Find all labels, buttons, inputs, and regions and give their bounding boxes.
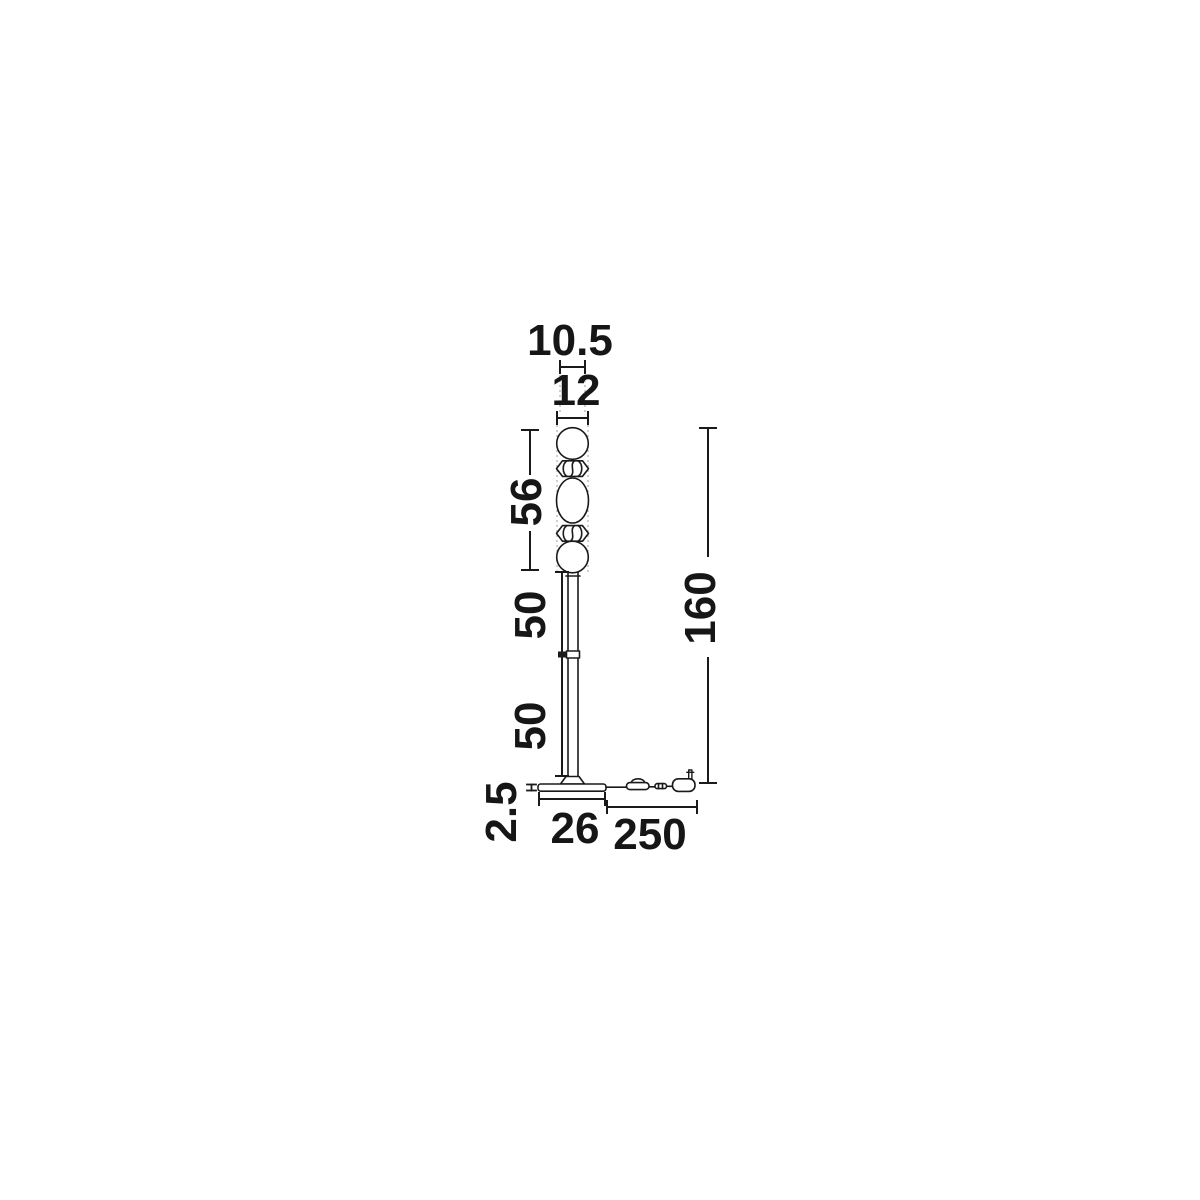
cord-connector — [655, 784, 667, 789]
power-plug — [673, 770, 696, 791]
plug-body — [673, 779, 696, 792]
dim-line-pole-segments — [556, 572, 568, 776]
pole-mount — [561, 777, 585, 785]
pole-joint — [567, 651, 580, 658]
glass-ellipse — [557, 478, 589, 523]
plug-pin — [689, 770, 692, 779]
lower-bicone-bead — [557, 526, 589, 542]
lamp-base — [538, 784, 606, 791]
dim-label-base-width: 26 — [551, 811, 600, 847]
dim-line-base-thickness — [527, 785, 536, 791]
inline-switch — [627, 779, 650, 790]
dim-label-lower-pole-length: 50 — [513, 702, 549, 751]
pole-segment-divider — [558, 652, 566, 658]
bottom-sphere — [557, 541, 589, 573]
upper-bicone-bead — [557, 461, 589, 477]
lamp-pole — [566, 571, 580, 777]
dim-label-glass-stack-height: 56 — [509, 478, 545, 527]
lamp-line-art — [0, 0, 1200, 1200]
dim-label-upper-pole-length: 50 — [513, 591, 549, 640]
dim-label-total-height: 160 — [683, 571, 719, 644]
dim-label-base-thickness: 2.5 — [484, 781, 520, 842]
dim-label-shade-width: 12 — [552, 373, 601, 409]
dim-label-cable-length: 250 — [613, 817, 686, 853]
diagram-canvas: 10.5 12 56 50 50 160 2.5 26 250 — [0, 0, 1200, 1200]
top-sphere — [557, 428, 589, 460]
dim-label-top-sphere-diameter: 10.5 — [527, 323, 613, 359]
